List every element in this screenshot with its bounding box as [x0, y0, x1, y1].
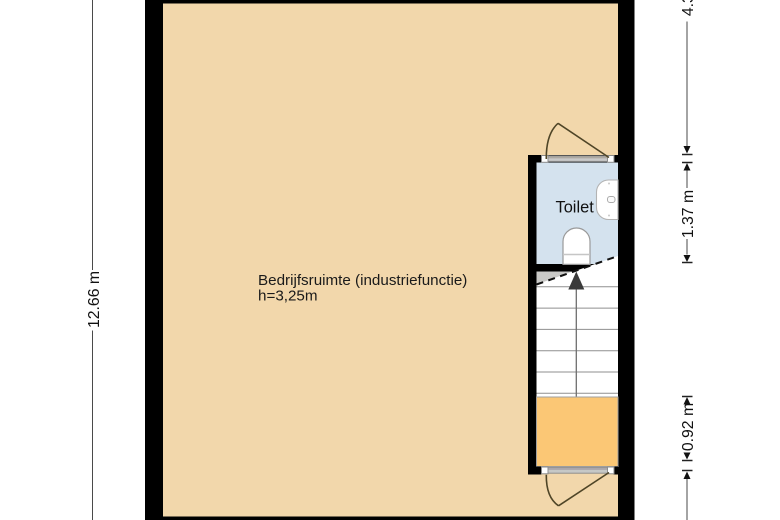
svg-text:12.66 m: 12.66 m [86, 271, 103, 328]
svg-text:0.92 m: 0.92 m [680, 403, 697, 451]
svg-text:4.37 m: 4.37 m [680, 0, 697, 16]
svg-text:1.37 m: 1.37 m [680, 190, 697, 238]
svg-text:Toilet: Toilet [556, 199, 595, 217]
svg-text:h=3,25m: h=3,25m [258, 288, 318, 305]
svg-text:Bedrijfsruimte (industriefunct: Bedrijfsruimte (industriefunctie) [258, 272, 467, 289]
